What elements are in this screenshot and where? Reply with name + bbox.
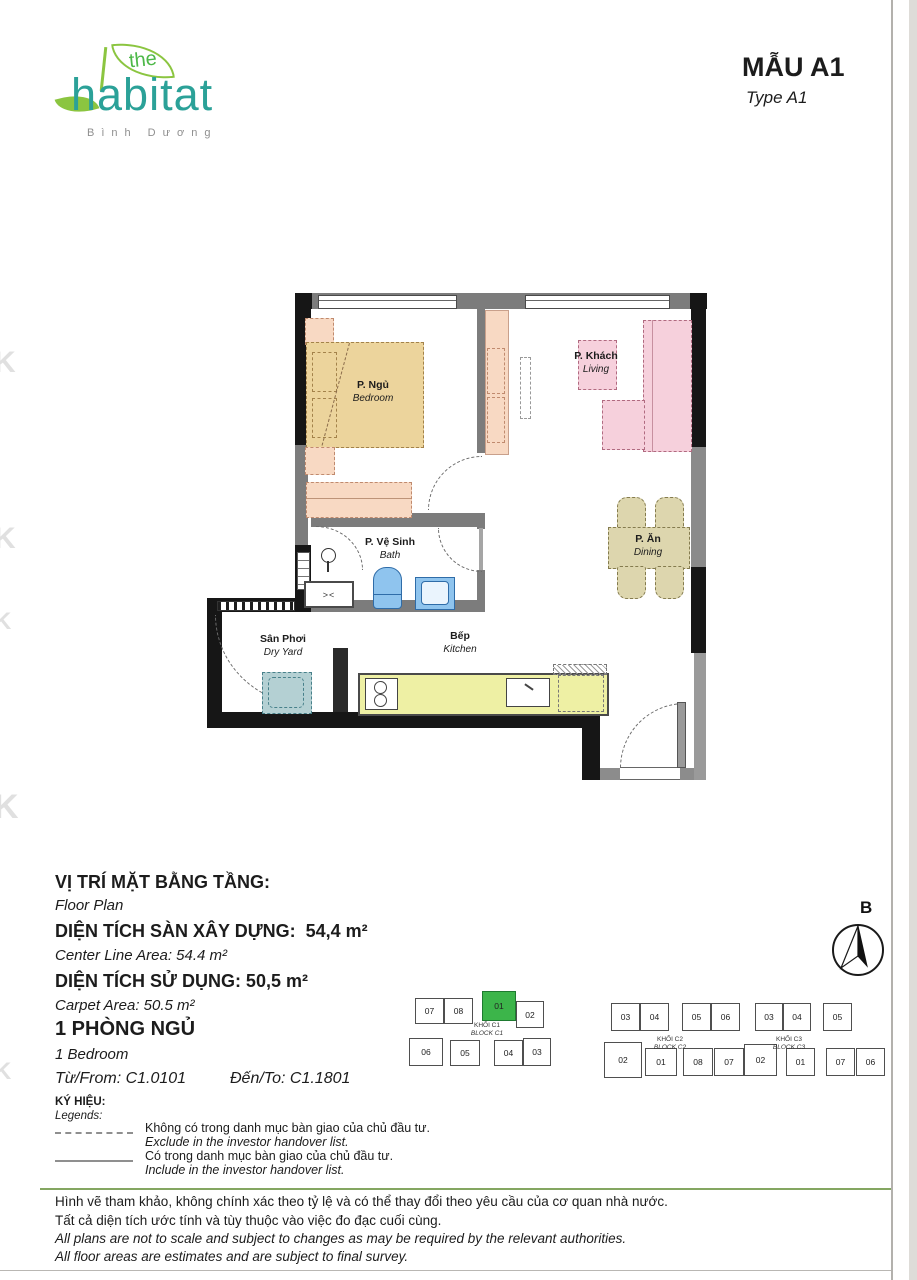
shower-stem: [327, 561, 329, 572]
legend-include-en: Include in the investor handover list.: [145, 1163, 344, 1177]
bedroom-wardrobe: [306, 482, 412, 518]
disclaimer-en-2: All floor areas are estimates and are su…: [55, 1249, 408, 1264]
logo-location: Bình Dương: [87, 127, 217, 139]
unit-box: 06: [856, 1048, 885, 1076]
unit-box: 03: [611, 1003, 640, 1031]
scan-watermark: K: [0, 1058, 11, 1086]
block-label-c1: KHỐI C1BLOCK C1: [452, 1022, 522, 1037]
dining-chair: [617, 566, 646, 599]
wall-right-upper: [691, 309, 706, 447]
disclaimer-vi-2: Tất cả diện tích ước tính và tùy thuộc v…: [55, 1213, 441, 1228]
info-floorplan-vi: VỊ TRÍ MẶT BẰNG TẦNG:: [55, 872, 270, 893]
unit-box-highlighted: 01: [482, 991, 516, 1021]
block-label-c3: KHỐI C3BLOCK C3: [756, 1036, 822, 1051]
info-bedrooms-vi: 1 PHÒNG NGỦ: [55, 1018, 195, 1041]
unit-box: 04: [640, 1003, 669, 1031]
wall-entry-left: [582, 712, 600, 780]
service-shaft: ><: [304, 581, 354, 608]
unit-box: 01: [786, 1048, 815, 1076]
disclaimer-en-1: All plans are not to scale and subject t…: [55, 1231, 626, 1246]
sofa-chaise: [602, 400, 645, 450]
info-construction-area-en: Center Line Area: 54.4 m²: [55, 947, 227, 964]
legend-exclude-en: Exclude in the investor handover list.: [145, 1135, 349, 1149]
room-label-living: P. KháchLiving: [546, 350, 646, 376]
disclaimer-vi-1: Hình vẽ tham khảo, không chính xác theo …: [55, 1194, 668, 1209]
legend-dashed-line: [55, 1132, 133, 1134]
wall-right-entry: [694, 653, 706, 780]
kitchen-sink: [506, 678, 550, 707]
shaft-symbol: ><: [323, 590, 336, 600]
info-floorplan-en: Floor Plan: [55, 897, 123, 914]
scan-watermark: K: [0, 788, 19, 827]
legends-title-vi: KÝ HIỆU:: [55, 1096, 105, 1108]
scan-watermark: K: [0, 346, 16, 380]
unit-box: 03: [523, 1038, 551, 1066]
unit-box: 07: [826, 1048, 855, 1076]
burner: [374, 694, 387, 707]
floorplan-sheet: { "header": { "logo_the": "the", "logo_n…: [0, 0, 917, 1280]
toilet: [373, 567, 402, 609]
wall-right-lower: [691, 567, 706, 653]
compass: B: [830, 893, 888, 983]
wall-kitchen-dryyard: [333, 648, 348, 712]
entry-door-leaf: [677, 702, 686, 768]
unit-box: 06: [711, 1003, 740, 1031]
scan-watermark: K: [0, 522, 16, 556]
page-right-border: [891, 0, 893, 1280]
entry-door-arc: [620, 703, 685, 768]
room-label-kitchen: BếpKitchen: [410, 630, 510, 656]
scan-watermark: K: [0, 608, 11, 636]
burner: [374, 681, 387, 694]
sofa: [643, 320, 692, 452]
footer-gray-rule: [0, 1270, 891, 1271]
bath-sink-basin: [421, 581, 449, 605]
bath-door-arc: [438, 528, 482, 572]
info-carpet-area-en: Carpet Area: 50.5 m²: [55, 997, 195, 1014]
scan-edge: [909, 0, 917, 1280]
wall-bath-right-top: [477, 513, 485, 529]
window-living: [525, 295, 670, 309]
washer-drum: [268, 677, 304, 708]
legend-solid-line: [55, 1160, 133, 1162]
legends-title-en: Legends:: [55, 1110, 102, 1122]
info-bedrooms-en: 1 Bedroom: [55, 1046, 128, 1063]
sheet-subtitle: Type A1: [746, 88, 807, 108]
info-carpet-area-vi: DIỆN TÍCH SỬ DỤNG: 50,5 m²: [55, 971, 308, 992]
unit-box: 08: [683, 1048, 713, 1076]
room-label-bath: P. Vệ SinhBath: [340, 536, 440, 562]
dining-chair: [655, 497, 684, 530]
block-label-c2: KHỐI C2BLOCK C2: [637, 1036, 703, 1051]
entry-threshold: [620, 767, 680, 780]
wall-entry-bottom-left: [600, 768, 622, 780]
wall-top-cap-right: [690, 293, 707, 309]
unit-box: 07: [415, 998, 444, 1024]
dining-chair: [617, 497, 646, 530]
footer-green-rule: [40, 1188, 891, 1190]
habitat-logo: the habitat Bình Dương: [55, 35, 275, 135]
wardrobe-shelf: [487, 348, 505, 394]
vent-strip: [217, 601, 295, 611]
room-label-dining: P. ĂnDining: [598, 533, 698, 559]
nightstand: [305, 447, 335, 475]
sheet-title: MẪU A1: [742, 52, 845, 83]
fridge-space: [558, 675, 604, 712]
info-construction-area-vi: DIỆN TÍCH SÀN XÂY DỰNG: 54,4 m²: [55, 921, 368, 942]
legend-include-vi: Có trong danh mục bàn giao của chủ đầu t…: [145, 1149, 393, 1163]
svg-text:B: B: [860, 898, 872, 917]
floor-plan: >< P. NgủBedroom P. KháchLi: [200, 285, 712, 785]
unit-box: 04: [494, 1040, 523, 1066]
unit-box: 05: [450, 1040, 480, 1066]
unit-box: 07: [714, 1048, 744, 1076]
unit-box: 01: [645, 1048, 677, 1076]
nightstand: [305, 318, 334, 345]
bedroom-door-arc: [428, 456, 482, 510]
info-unit-from: Từ/From: C1.0101: [55, 1070, 186, 1088]
dining-chair: [655, 566, 684, 599]
logo-wordmark: habitat: [71, 69, 213, 121]
unit-box: 05: [823, 1003, 852, 1031]
room-label-bedroom: P. NgủBedroom: [323, 379, 423, 405]
window-bedroom: [318, 295, 457, 309]
unit-box: 04: [783, 1003, 811, 1031]
unit-box: 08: [444, 998, 473, 1024]
unit-box: 05: [682, 1003, 711, 1031]
info-unit-to: Đến/To: C1.1801: [230, 1070, 350, 1088]
room-label-dryyard: Sân PhơiDry Yard: [233, 633, 333, 659]
wardrobe-shelf: [487, 397, 505, 443]
counter-hatch: [553, 664, 607, 675]
unit-box: 03: [755, 1003, 783, 1031]
hall-mirror: [520, 357, 531, 419]
wall-bedroom-right: [477, 309, 485, 453]
legend-exclude-vi: Không có trong danh mục bàn giao của chủ…: [145, 1121, 430, 1135]
compass-icon: B: [830, 893, 888, 983]
unit-box: 06: [409, 1038, 443, 1066]
